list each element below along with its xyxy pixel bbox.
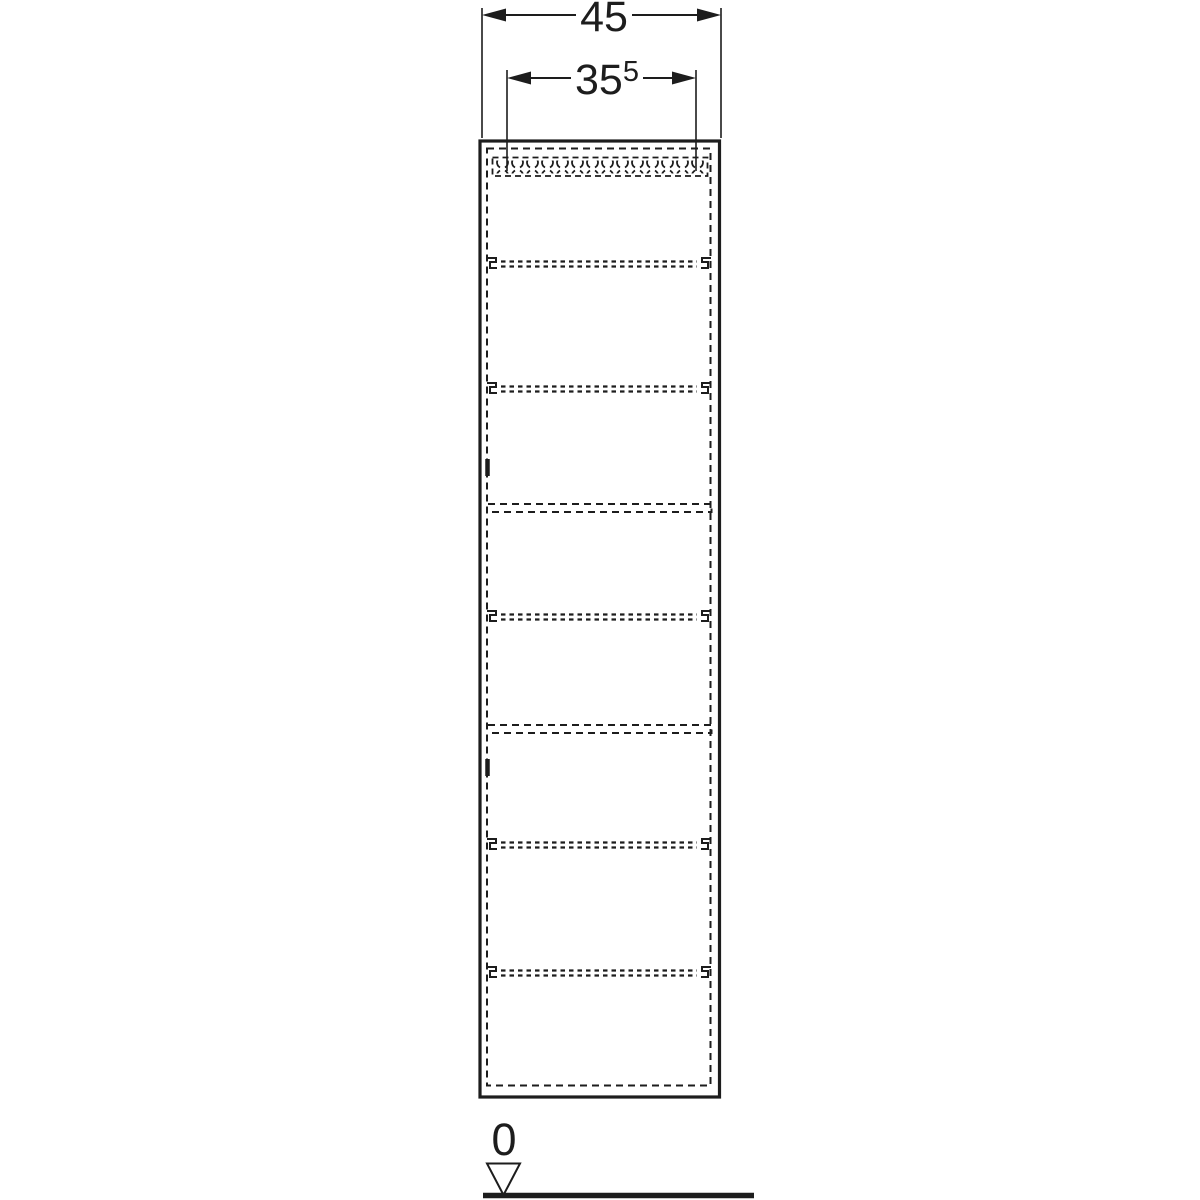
shelf-line [501,615,697,620]
shelf-clip-left-icon [487,258,497,268]
cabinet-door-hidden-outline [487,149,711,1086]
fixed-shelf-band [488,725,712,733]
shelf-clip-left-icon [487,383,497,393]
fixed-shelf-band [488,504,712,512]
shelf-pin-clips [487,258,711,977]
inner-width-value: 355 [575,56,639,104]
shelf-line [501,843,697,848]
cabinet-front-elevation: 45 355 0 [0,0,1200,1200]
datum-triangle-icon [487,1164,520,1196]
dimension-arrow-left-icon [507,72,531,85]
dimension-arrow-right-icon [672,72,696,85]
shelf-line [501,387,697,392]
dimension-arrow-right-icon [697,9,721,22]
adjustable-shelf-lines [501,262,697,976]
drawing-lines [480,8,754,1196]
inner-width-main: 35 [575,56,623,104]
mounting-rail-pattern [496,161,704,174]
technical-drawing-page: 45 355 0 [0,0,1200,1200]
datum-zero-label: 0 [491,1114,516,1165]
shelf-line [501,971,697,976]
mounting-rail [493,158,708,177]
overall-width-value: 45 [580,0,628,41]
shelf-clip-left-icon [487,839,497,849]
dimension-arrow-left-icon [482,9,506,22]
floor-datum [483,1164,754,1196]
dimension-labels: 45 355 0 [491,0,639,1165]
shelf-line [501,262,697,267]
inner-width-superscript: 5 [623,56,639,88]
shelf-clip-left-icon [487,611,497,621]
shelf-clip-left-icon [487,967,497,977]
